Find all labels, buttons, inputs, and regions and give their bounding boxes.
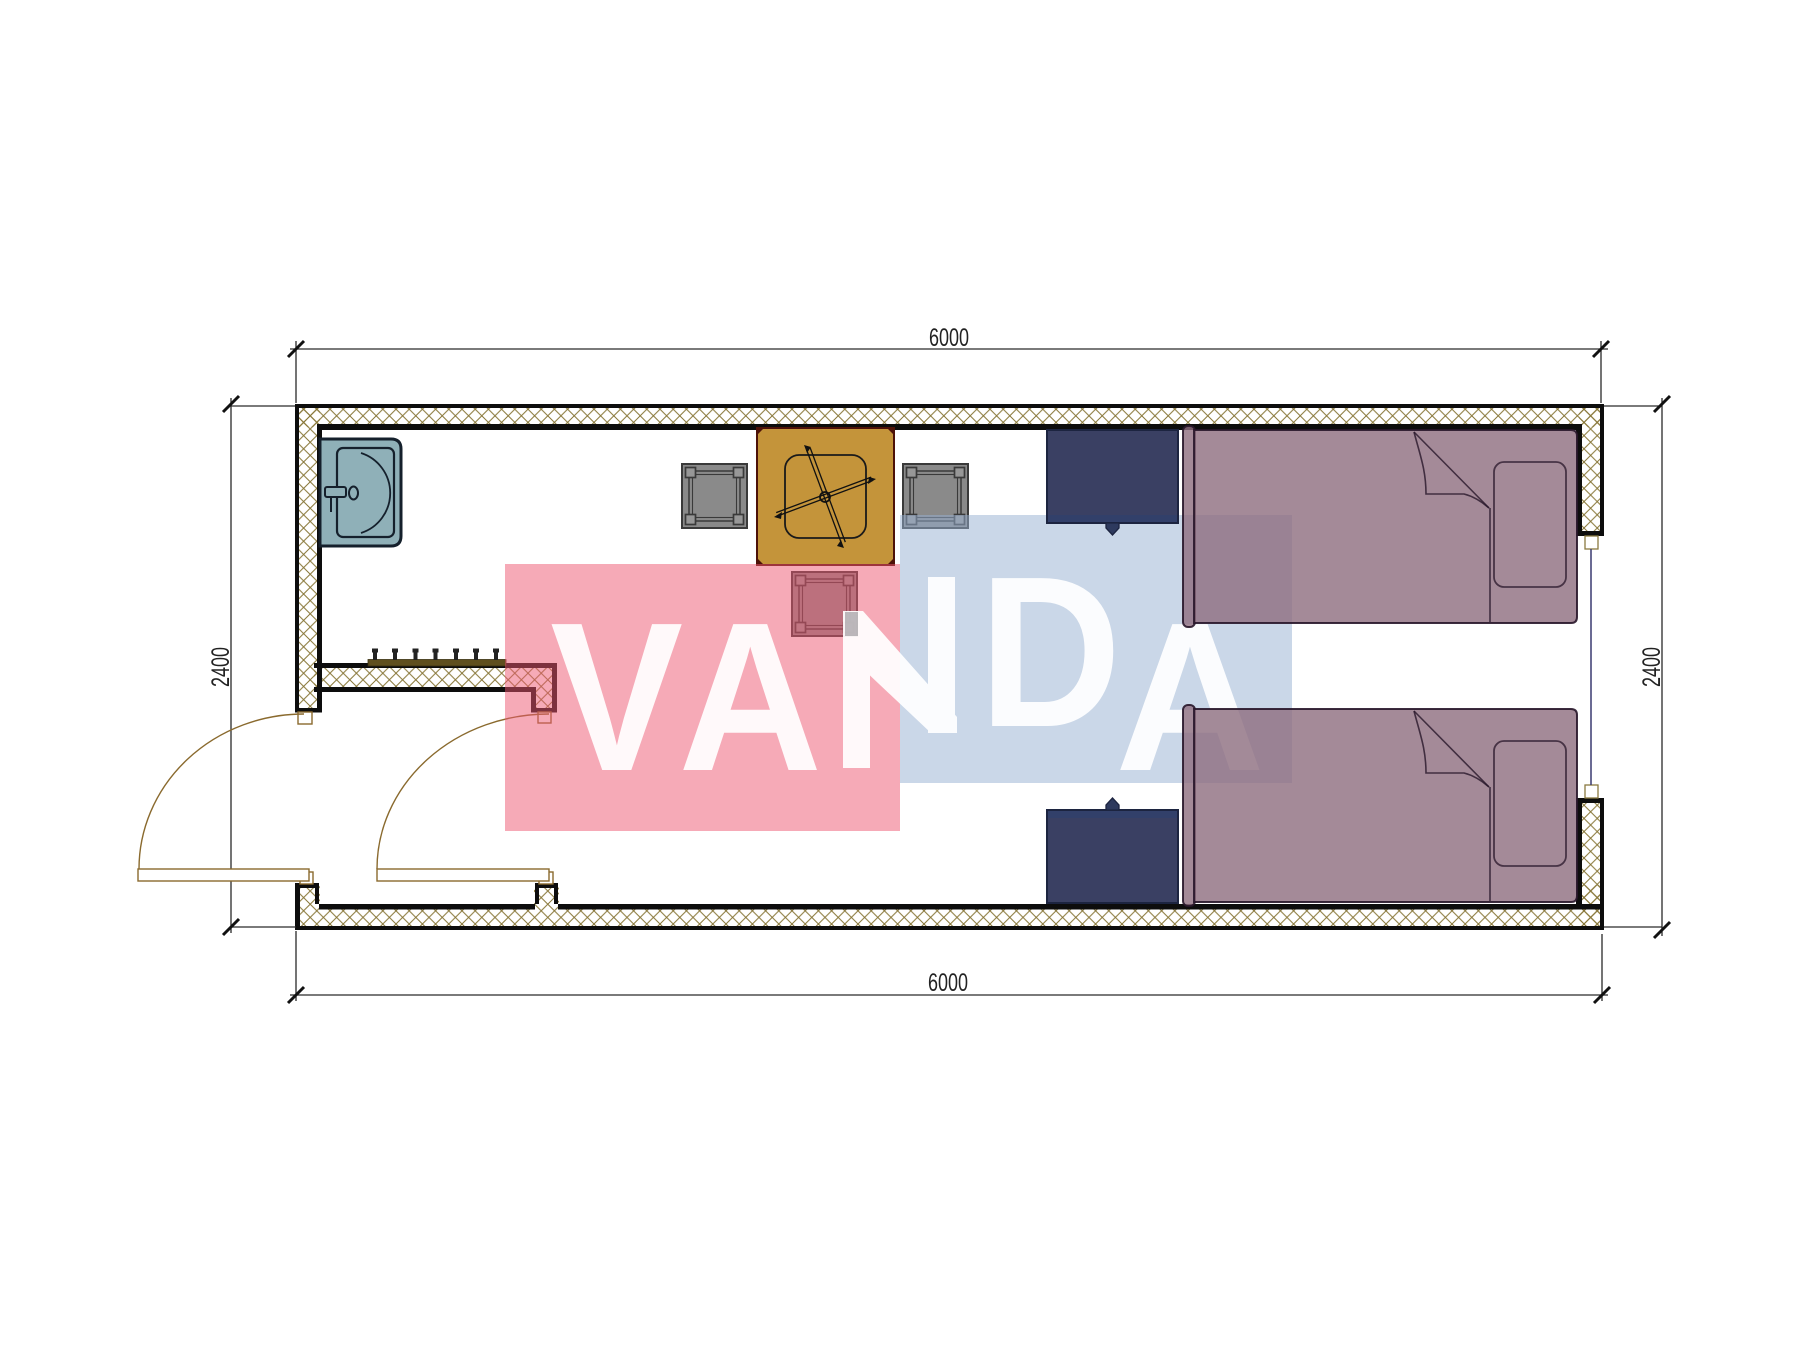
svg-text:6000: 6000 <box>928 968 968 997</box>
svg-text:6000: 6000 <box>929 323 969 352</box>
svg-text:2400: 2400 <box>206 647 235 687</box>
svg-text:A: A <box>678 578 822 815</box>
svg-text:V: V <box>550 578 683 815</box>
svg-text:D: D <box>979 531 1122 772</box>
svg-text:2400: 2400 <box>1637 647 1666 687</box>
